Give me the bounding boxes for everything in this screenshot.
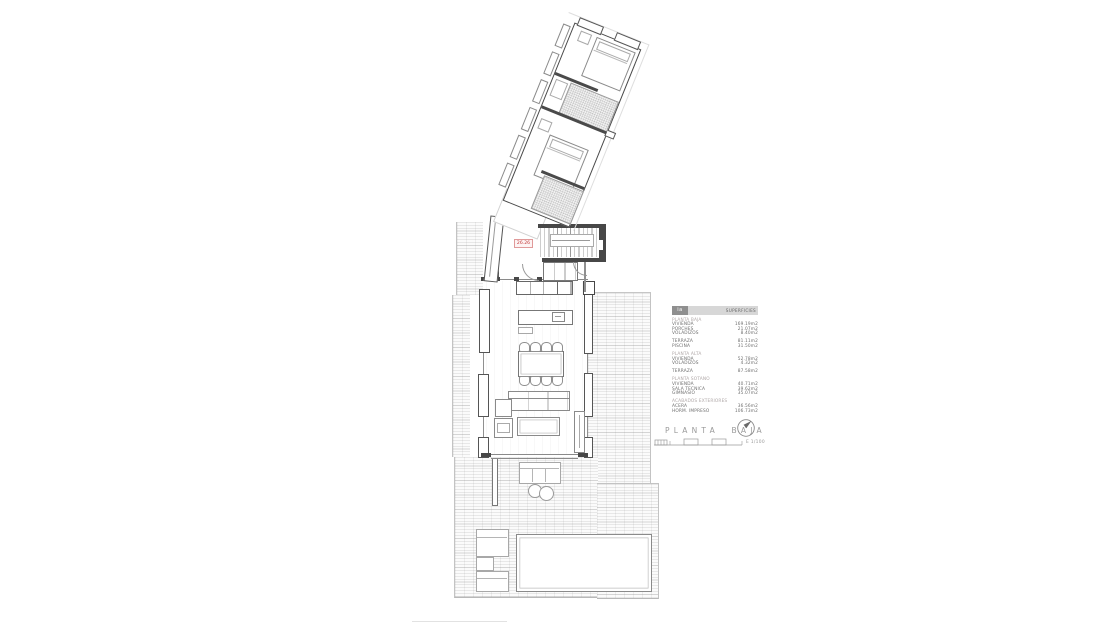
dining-chair: [519, 342, 530, 352]
wall-pilaster: [584, 373, 593, 417]
floor-plan-sheet: 26.26: [0, 0, 1110, 626]
level-marker: 26.26: [514, 239, 533, 248]
table-row: PISCINA31.50m2: [672, 345, 758, 350]
louver-slat: [521, 107, 537, 132]
kitchen-sink: [552, 312, 565, 322]
bottom-wall-cap: [481, 453, 491, 457]
garden-wall-stub: [492, 458, 498, 506]
table-row: GIMNASIO35.07m2: [672, 392, 758, 397]
dining-chair: [552, 376, 563, 386]
sun-lounger: [476, 529, 509, 557]
dining-chair: [541, 342, 552, 352]
plot-boundary-line: [412, 621, 507, 622]
nightstand: [577, 31, 592, 46]
louver-slat: [554, 23, 570, 48]
coffee-table: [517, 417, 560, 436]
sofa-seat: [508, 398, 570, 411]
bottom-wall-cap: [578, 453, 588, 457]
dining-table: [518, 351, 564, 377]
dining-chair: [519, 376, 530, 386]
stair-wall-stub: [584, 262, 586, 292]
dining-chair: [552, 342, 563, 352]
bottom-wall-glass: [491, 454, 578, 459]
wall-pilaster: [479, 289, 490, 353]
stair-rail: [550, 234, 594, 247]
terrace-left-strip-top: [456, 222, 483, 295]
sun-lounger: [476, 571, 509, 592]
outdoor-sofa: [519, 462, 561, 484]
louver-slat: [532, 79, 548, 104]
dining-chair: [530, 342, 541, 352]
louver-slat: [498, 162, 514, 187]
armchair: [495, 399, 512, 417]
terrace-left-strip: [452, 295, 470, 457]
tv-console: [574, 411, 585, 453]
armchair: [494, 418, 513, 438]
north-arrow-icon: [736, 418, 756, 438]
bedroom-wing: [503, 23, 642, 228]
scale-label: E 1/100: [746, 440, 765, 445]
surface-table: ia SUPERFICIES PLANTA BAJAVIVIENDA169.19…: [672, 306, 758, 414]
surface-table-title: SUPERFICIES: [688, 306, 758, 315]
kitchen-cabinets: [516, 281, 573, 295]
wall-pilaster: [478, 374, 489, 417]
surface-table-header: ia SUPERFICIES: [672, 306, 758, 315]
side-table: [476, 557, 494, 571]
terrace-right-strip: [588, 292, 651, 484]
nightstand: [537, 118, 552, 133]
outdoor-round-table: [539, 486, 554, 501]
graphic-scale-bar: [654, 436, 746, 448]
wall-pilaster: [584, 293, 593, 354]
kitchen-bench: [518, 327, 533, 334]
logo: ia: [672, 306, 688, 315]
surface-table-body: PLANTA BAJAVIVIENDA169.19m2PORCHES21.07m…: [672, 319, 758, 415]
dining-chair: [541, 376, 552, 386]
table-row: TERRAZA87.58m2: [672, 370, 758, 375]
dining-chair: [530, 376, 541, 386]
louver-slat: [509, 135, 525, 160]
swimming-pool: [516, 534, 652, 592]
table-row: HORM. IMPRESO106.73m2: [672, 410, 758, 415]
